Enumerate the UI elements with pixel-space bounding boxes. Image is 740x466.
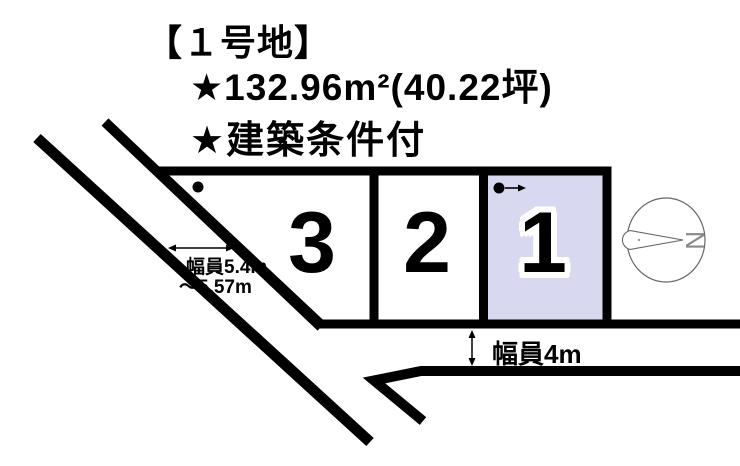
site-plan-diagram: N 【１号地】 ★132.96m²(40.22坪) ★建築条件付 3 2 1 幅… [0, 0, 740, 466]
lot-area-text: ★132.96m²(40.22坪) [190, 57, 553, 111]
compass-n-letter: N [680, 231, 710, 250]
lot-1-number: 1 [519, 200, 567, 286]
left-road-width-arrow-icon [168, 245, 234, 252]
bottom-road-width-arrow-icon [469, 330, 476, 366]
compass-north-icon: N [622, 198, 710, 282]
bottom-road-width-label: 幅員4m [492, 334, 582, 371]
building-condition-text: ★建築条件付 [190, 109, 426, 164]
lot-2-number: 2 [403, 200, 451, 286]
lot-3-number: 3 [288, 200, 336, 286]
bottom-road-lower-edge [374, 371, 740, 421]
lot-1-point-dot [494, 183, 505, 194]
left-road-width-label-line2: ～5.57m [179, 272, 252, 299]
lot-3-point-dot [193, 182, 204, 193]
